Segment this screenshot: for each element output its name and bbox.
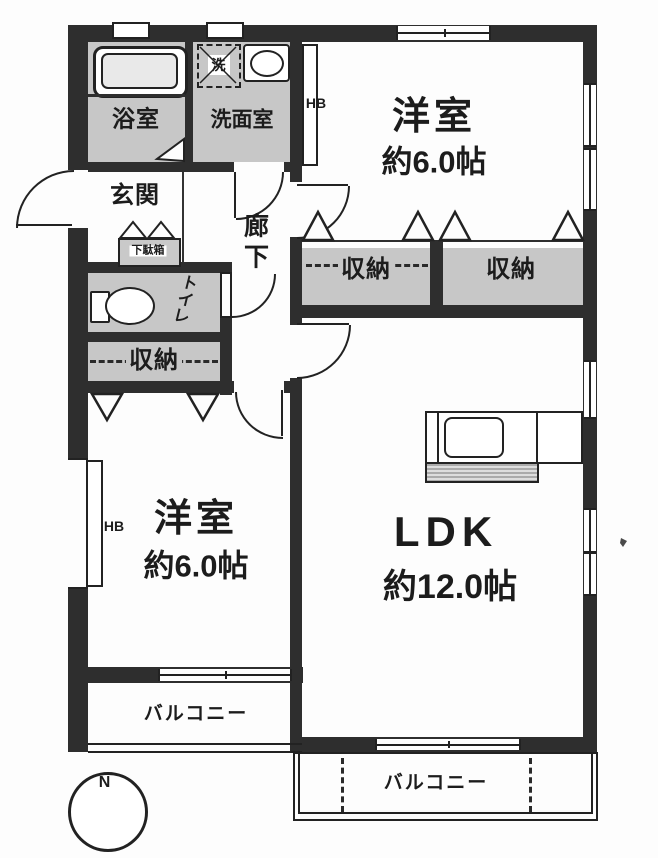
entrance-step-line: [182, 172, 184, 262]
kitchen-front-strip: [425, 462, 539, 483]
shoe-cabinet-door-mark: [120, 222, 146, 238]
label-closet-left: 収納: [126, 349, 182, 373]
label-bedroom-top-name: 洋室: [392, 98, 476, 136]
wall-below-closet-left: [68, 381, 234, 393]
kitchen-counter-divider-a: [437, 411, 439, 462]
wall-center-vertical-c: [290, 378, 302, 752]
closet-door-mark: [440, 212, 470, 240]
label-ldk-name: LDK: [394, 511, 498, 553]
label-corridor-char2: 下: [244, 246, 270, 271]
bathtub-inner: [101, 53, 178, 89]
kitchen-sink: [444, 417, 504, 458]
hb-left-panel: [86, 460, 103, 587]
label-corridor-char1: 廊: [244, 215, 270, 240]
label-bedroom-left-size: 約6.0帖: [143, 551, 248, 582]
balcony-divider-dash: [341, 758, 344, 812]
compass-north-label: N: [99, 775, 112, 791]
wall-below-toilet: [68, 332, 232, 342]
label-bath: 浴室: [112, 108, 160, 131]
window-top-bath: [112, 22, 150, 39]
kitchen-counter-divider-b: [536, 411, 538, 462]
label-balcony-bottom: バルコニー: [384, 774, 489, 793]
window-ldk-balcony-door: [375, 739, 521, 750]
wall-center-vertical-a: [290, 42, 302, 182]
label-bedroom-top-size: 約6.0帖: [381, 147, 486, 178]
bedroom-left-door-arc: [235, 392, 283, 439]
label-closet-top-right: 収納: [486, 258, 536, 282]
window-right-kitchen: [584, 360, 596, 419]
wall-below-bath: [68, 162, 234, 172]
toilet-door-leaf: [220, 272, 232, 318]
toilet-door-arc: [232, 274, 276, 318]
label-balcony-left: バルコニー: [144, 705, 249, 724]
bedroom-top-door-arc: [297, 186, 350, 239]
window-right-bedroom-a: [584, 83, 596, 147]
label-shoe-cabinet: 下駄箱: [130, 246, 167, 257]
window-right-ldk-b: [584, 552, 596, 596]
closet-door-mark: [553, 212, 583, 240]
closet-door-mark: [92, 394, 122, 420]
label-hb-left: HB: [104, 519, 124, 533]
label-bedroom-left-name: 洋室: [154, 500, 238, 538]
entrance-door-arc: [16, 170, 74, 228]
window-top-bedroom: [396, 26, 491, 40]
floor-plan: N 浴室 洗面室 洗 HB 洋室 約6.0帖 収納 収納 玄関 下駄箱 廊 下 …: [0, 0, 658, 858]
wall-below-closets: [290, 305, 597, 318]
toilet-bowl: [105, 287, 155, 325]
label-washroom: 洗面室: [211, 110, 274, 131]
entrance-door-leaf: [16, 224, 72, 226]
shoe-cabinet-door-mark: [148, 222, 174, 238]
label-entrance: 玄関: [110, 184, 160, 208]
label-closet-top-left: 収納: [338, 258, 394, 282]
closet-door-mark: [403, 212, 433, 240]
closet-door-mark: [188, 394, 218, 420]
balcony-divider-dash: [529, 758, 532, 812]
bathtub-deck-line: [88, 94, 185, 97]
hb-left-wall-gap: [68, 458, 88, 589]
window-top-washroom: [206, 22, 244, 39]
balcony-left-rail: [88, 743, 302, 753]
ldk-door-arc: [297, 325, 351, 379]
wall-below-closet-left-b: [284, 381, 302, 393]
window-bedroom-left-balcony-door: [158, 669, 292, 681]
label-ldk-size: 約12.0帖: [383, 570, 517, 604]
window-right-bedroom-b: [584, 148, 596, 211]
label-washer: 洗: [212, 58, 227, 72]
scan-speck: [620, 538, 627, 547]
window-right-ldk-a: [584, 508, 596, 553]
label-hb-top: HB: [306, 96, 326, 110]
sink-bowl: [250, 50, 284, 77]
